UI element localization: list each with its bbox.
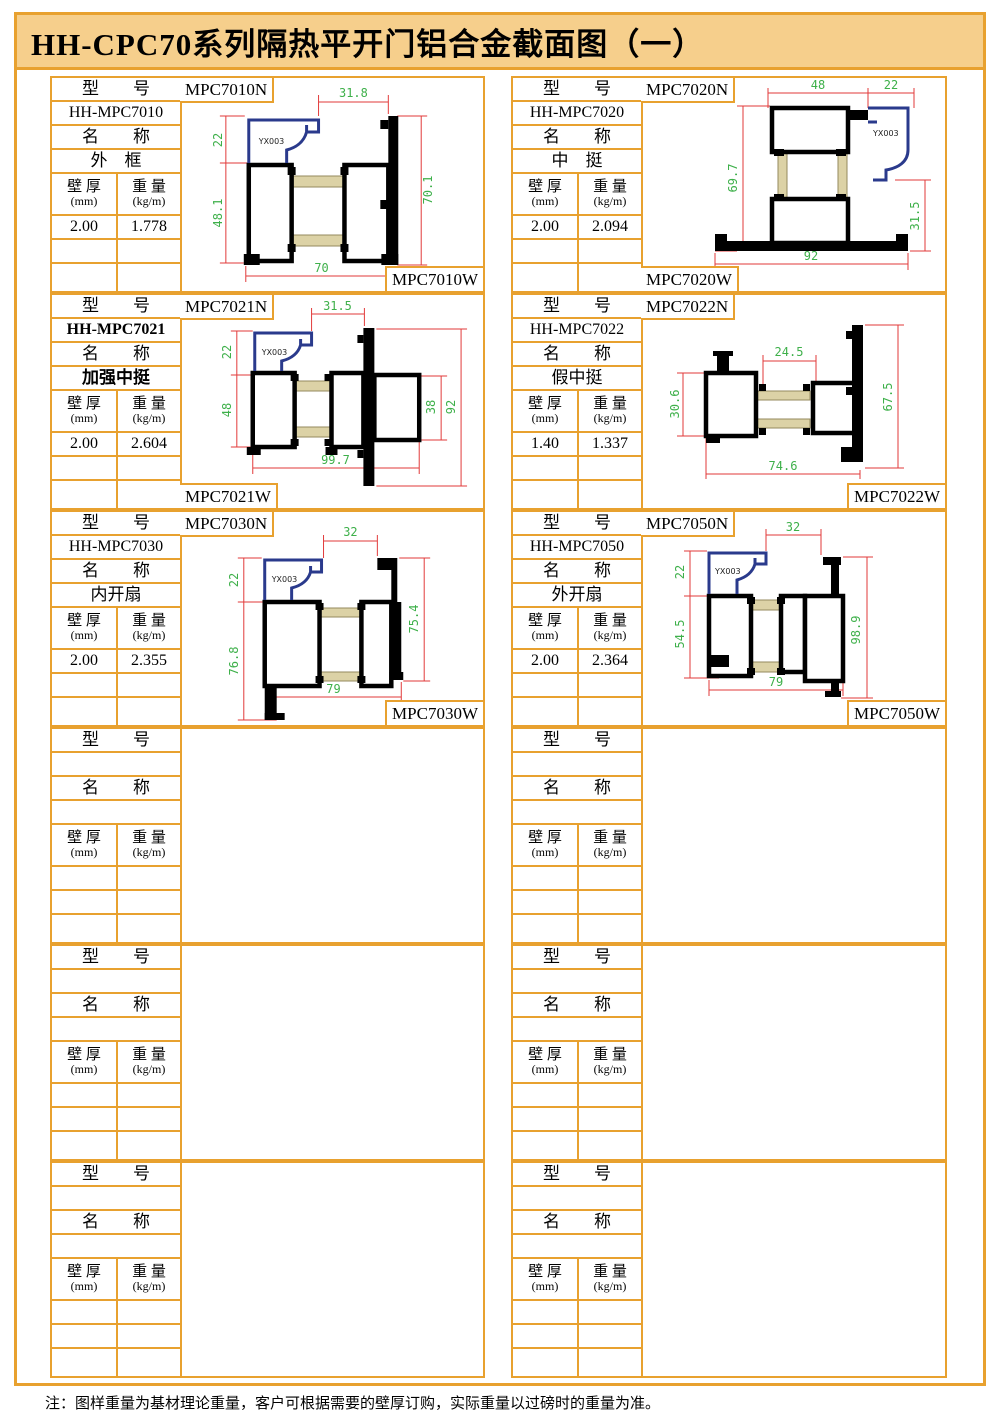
name-label: 名 称 xyxy=(52,994,180,1018)
section-drawing-mpc7021: YX003 31.5 22 48 38 92 99.7 xyxy=(182,295,483,508)
weight-header: 重 量(kg/m) xyxy=(577,825,641,865)
units-header-row: 壁 厚(mm) 重 量(kg/m) xyxy=(513,174,641,216)
values-row: 2.00 2.364 xyxy=(513,650,641,674)
dim-left-top: 22 xyxy=(211,133,225,147)
drawing-code-n: MPC7022N xyxy=(641,295,735,320)
drawing-code-n: MPC7021N xyxy=(180,295,274,320)
thermal-breaks xyxy=(295,381,332,437)
model-label: 型 号 xyxy=(513,946,641,970)
model-label: 型 号 xyxy=(513,729,641,753)
empty-row xyxy=(52,1108,180,1132)
units-header-row: 壁 厚(mm) 重 量(kg/m) xyxy=(52,174,180,216)
dim-top: 24.5 xyxy=(775,345,804,359)
empty-row xyxy=(513,1349,641,1376)
spec-table: 型 号 名 称 壁 厚(mm) 重 量(kg/m) xyxy=(52,946,182,1159)
dim-top-left: 48 xyxy=(811,78,825,92)
dim-top: 32 xyxy=(786,520,800,534)
values-row: 2.00 2.094 xyxy=(513,216,641,240)
cell-mpc7030: 型 号 HH-MPC7030 名 称 内开扇 壁 厚(mm) 重 量(kg/m)… xyxy=(50,510,485,727)
name-value: 外开扇 xyxy=(513,584,641,608)
model-value: HH-MPC7050 xyxy=(513,536,641,560)
gasket-label: YX003 xyxy=(714,567,741,576)
empty-row xyxy=(52,481,180,508)
drawing-code-w: MPC7022W xyxy=(847,483,945,508)
gasket-label: YX003 xyxy=(261,348,288,357)
weight-value: 2.355 xyxy=(116,650,180,672)
cell-empty-5: 型 号 名 称 壁 厚(mm) 重 量(kg/m) xyxy=(50,1161,485,1378)
name-label: 名 称 xyxy=(52,777,180,801)
thickness-header: 壁 厚(mm) xyxy=(52,825,116,865)
model-value: HH-MPC7022 xyxy=(513,319,641,343)
thermal-breaks xyxy=(292,176,345,246)
weight-header: 重 量(kg/m) xyxy=(116,174,180,214)
units-header-row: 壁 厚(mm) 重 量(kg/m) xyxy=(513,391,641,433)
model-value xyxy=(52,753,180,777)
footer-note: 注：图样重量为基材理论重量，客户可根据需要的壁厚订购，实际重量以过磅时的重量为准… xyxy=(45,1392,660,1413)
thickness-value: 1.40 xyxy=(513,433,577,455)
thickness-value: 2.00 xyxy=(52,433,116,455)
empty-row xyxy=(513,457,641,481)
empty-row xyxy=(513,1084,641,1108)
dim-left-top: 22 xyxy=(227,573,241,587)
name-label: 名 称 xyxy=(513,994,641,1018)
thickness-header: 壁 厚(mm) xyxy=(513,608,577,648)
thickness-header: 壁 厚(mm) xyxy=(52,608,116,648)
name-value: 假中挺 xyxy=(513,367,641,391)
dim-left: 76.8 xyxy=(227,647,241,676)
model-label: 型 号 xyxy=(513,512,641,536)
weight-header: 重 量(kg/m) xyxy=(577,608,641,648)
empty-row xyxy=(513,915,641,942)
thickness-header: 壁 厚(mm) xyxy=(513,1259,577,1299)
empty-row xyxy=(513,264,641,291)
units-header-row: 壁 厚(mm) 重 量(kg/m) xyxy=(52,825,180,867)
empty-row xyxy=(513,674,641,698)
page: HH-CPC70系列隔热平开门铝合金截面图（一） 型 号 HH-MPC7010 … xyxy=(0,0,1000,1415)
empty-row xyxy=(52,1325,180,1349)
weight-header: 重 量(kg/m) xyxy=(116,608,180,648)
name-value: 加强中挺 xyxy=(52,367,180,391)
spec-table: 型 号 HH-MPC7010 名 称 外 框 壁 厚(mm) 重 量(kg/m)… xyxy=(52,78,182,291)
name-value xyxy=(52,1018,180,1042)
empty-row xyxy=(513,1325,641,1349)
dim-bottom: 70 xyxy=(314,261,328,275)
units-header-row: 壁 厚(mm) 重 量(kg/m) xyxy=(52,391,180,433)
empty-row xyxy=(513,891,641,915)
thickness-header: 壁 厚(mm) xyxy=(52,1042,116,1082)
name-value: 外 框 xyxy=(52,150,180,174)
model-value xyxy=(52,1187,180,1211)
cells-grid: 型 号 HH-MPC7010 名 称 外 框 壁 厚(mm) 重 量(kg/m)… xyxy=(17,70,983,1378)
model-label: 型 号 xyxy=(52,729,180,753)
weight-header: 重 量(kg/m) xyxy=(116,391,180,431)
spec-table: 型 号 HH-MPC7021 名 称 加强中挺 壁 厚(mm) 重 量(kg/m… xyxy=(52,295,182,508)
weight-value: 1.778 xyxy=(116,216,180,238)
empty-row xyxy=(52,867,180,891)
weight-header: 重 量(kg/m) xyxy=(577,1259,641,1299)
cell-mpc7022: 型 号 HH-MPC7022 名 称 假中挺 壁 厚(mm) 重 量(kg/m)… xyxy=(511,293,947,510)
spec-table: 型 号 名 称 壁 厚(mm) 重 量(kg/m) xyxy=(52,1163,182,1376)
dim-top: 31.8 xyxy=(339,86,368,100)
gasket-label: YX003 xyxy=(872,129,899,138)
thickness-header: 壁 厚(mm) xyxy=(513,1042,577,1082)
weight-value: 1.337 xyxy=(577,433,641,455)
cell-empty-4: 型 号 名 称 壁 厚(mm) 重 量(kg/m) xyxy=(511,944,947,1161)
empty-row xyxy=(52,1084,180,1108)
model-label: 型 号 xyxy=(52,295,180,319)
units-header-row: 壁 厚(mm) 重 量(kg/m) xyxy=(513,825,641,867)
name-value xyxy=(513,1235,641,1259)
dim-left: 48.1 xyxy=(211,199,225,228)
dim-left: 48 xyxy=(220,403,234,417)
cell-mpc7050: 型 号 HH-MPC7050 名 称 外开扇 壁 厚(mm) 重 量(kg/m)… xyxy=(511,510,947,727)
weight-header: 重 量(kg/m) xyxy=(116,1259,180,1299)
empty-row xyxy=(513,1132,641,1159)
dim-bottom: 92 xyxy=(804,249,818,263)
name-value xyxy=(52,801,180,825)
drawing-code-n: MPC7030N xyxy=(180,512,274,537)
dim-right: 92 xyxy=(444,400,458,414)
cell-mpc7021: 型 号 HH-MPC7021 名 称 加强中挺 壁 厚(mm) 重 量(kg/m… xyxy=(50,293,485,510)
name-label: 名 称 xyxy=(513,777,641,801)
name-value xyxy=(513,801,641,825)
thermal-breaks xyxy=(778,150,847,199)
units-header-row: 壁 厚(mm) 重 量(kg/m) xyxy=(52,608,180,650)
name-label: 名 称 xyxy=(513,126,641,150)
model-value xyxy=(52,970,180,994)
weight-unit: (kg/m) xyxy=(133,195,166,208)
drawing-code-w: MPC7050W xyxy=(847,700,945,725)
model-value xyxy=(513,1187,641,1211)
units-header-row: 壁 厚(mm) 重 量(kg/m) xyxy=(52,1259,180,1301)
thickness-header: 壁 厚(mm) xyxy=(513,825,577,865)
empty-row xyxy=(513,481,641,508)
dim-top: 31.5 xyxy=(323,299,352,313)
thermal-breaks xyxy=(320,608,362,681)
values-row: 1.40 1.337 xyxy=(513,433,641,457)
spec-table: 型 号 名 称 壁 厚(mm) 重 量(kg/m) xyxy=(513,729,643,942)
page-title: HH-CPC70系列隔热平开门铝合金截面图（一） xyxy=(31,19,704,64)
units-header-row: 壁 厚(mm) 重 量(kg/m) xyxy=(513,1259,641,1301)
dim-left: 54.5 xyxy=(673,620,687,649)
cell-empty-2: 型 号 名 称 壁 厚(mm) 重 量(kg/m) xyxy=(511,727,947,944)
model-value xyxy=(513,753,641,777)
units-header-row: 壁 厚(mm) 重 量(kg/m) xyxy=(513,1042,641,1084)
model-label: 型 号 xyxy=(513,78,641,102)
dim-mid-right: 38 xyxy=(424,400,438,414)
thermal-breaks xyxy=(751,600,781,672)
drawing-code-w: MPC7020W xyxy=(641,266,739,291)
spec-table: 型 号 HH-MPC7030 名 称 内开扇 壁 厚(mm) 重 量(kg/m)… xyxy=(52,512,182,725)
dim-right: 75.4 xyxy=(407,605,421,634)
name-label: 名 称 xyxy=(513,343,641,367)
name-label: 名 称 xyxy=(52,126,180,150)
thickness-unit: (mm) xyxy=(71,195,98,208)
thickness-header: 壁 厚(mm) xyxy=(513,391,577,431)
model-label: 型 号 xyxy=(52,1163,180,1187)
values-row: 2.00 2.604 xyxy=(52,433,180,457)
model-value: HH-MPC7021 xyxy=(52,319,180,343)
gasket-label: YX003 xyxy=(271,575,298,584)
profile-chambers xyxy=(253,373,419,447)
thickness-value: 2.00 xyxy=(513,650,577,672)
model-label: 型 号 xyxy=(513,1163,641,1187)
drawing-code-n: MPC7020N xyxy=(641,78,735,103)
section-drawing-mpc7030: YX003 32 22 76.8 75.4 79 xyxy=(182,512,483,725)
name-label: 名 称 xyxy=(513,1211,641,1235)
spec-table: 型 号 HH-MPC7022 名 称 假中挺 壁 厚(mm) 重 量(kg/m)… xyxy=(513,295,643,508)
empty-row xyxy=(52,240,180,264)
name-value xyxy=(513,1018,641,1042)
thickness-value: 2.00 xyxy=(52,216,116,238)
weight-value: 2.604 xyxy=(116,433,180,455)
dim-left: 30.6 xyxy=(668,390,682,419)
empty-row xyxy=(513,1108,641,1132)
dim-right: 98.9 xyxy=(849,616,863,645)
section-drawing-mpc7010: YX003 31.8 22 48.1 70.1 70 xyxy=(182,78,483,291)
dim-bottom: 79 xyxy=(326,682,340,696)
values-row: 2.00 1.778 xyxy=(52,216,180,240)
thermal-breaks xyxy=(756,391,810,428)
empty-row xyxy=(513,698,641,725)
cell-empty-6: 型 号 名 称 壁 厚(mm) 重 量(kg/m) xyxy=(511,1161,947,1378)
empty-row xyxy=(52,457,180,481)
cell-empty-1: 型 号 名 称 壁 厚(mm) 重 量(kg/m) xyxy=(50,727,485,944)
section-drawing-mpc7022: 24.5 30.6 67.5 74.6 xyxy=(643,295,945,508)
model-value: HH-MPC7030 xyxy=(52,536,180,560)
section-drawing-mpc7020: YX003 48 22 69.7 31.5 92 xyxy=(643,78,945,291)
thickness-value: 2.00 xyxy=(513,216,577,238)
empty-row xyxy=(52,698,180,725)
thickness-value: 2.00 xyxy=(52,650,116,672)
weight-header: 重 量(kg/m) xyxy=(577,174,641,214)
empty-row xyxy=(52,264,180,291)
name-value: 中 挺 xyxy=(513,150,641,174)
units-header-row: 壁 厚(mm) 重 量(kg/m) xyxy=(52,1042,180,1084)
empty-row xyxy=(52,1132,180,1159)
weight-value: 2.094 xyxy=(577,216,641,238)
empty-row xyxy=(52,1349,180,1376)
section-drawing-mpc7050: YX003 32 22 54.5 98.9 79 xyxy=(643,512,945,725)
empty-row xyxy=(52,1301,180,1325)
values-row: 2.00 2.355 xyxy=(52,650,180,674)
units-header-row: 壁 厚(mm) 重 量(kg/m) xyxy=(513,608,641,650)
drawing-code-w: MPC7010W xyxy=(385,266,483,291)
dim-left-top: 22 xyxy=(220,345,234,359)
model-label: 型 号 xyxy=(513,295,641,319)
model-value: HH-MPC7020 xyxy=(513,102,641,126)
dim-right: 67.5 xyxy=(881,383,895,412)
name-value: 内开扇 xyxy=(52,584,180,608)
empty-row xyxy=(52,891,180,915)
weight-header: 重 量(kg/m) xyxy=(116,1042,180,1082)
weight-header: 重 量(kg/m) xyxy=(577,391,641,431)
cell-empty-3: 型 号 名 称 壁 厚(mm) 重 量(kg/m) xyxy=(50,944,485,1161)
drawing-code-n: MPC7050N xyxy=(641,512,735,537)
weight-value: 2.364 xyxy=(577,650,641,672)
empty-row xyxy=(513,1301,641,1325)
spec-table: 型 号 名 称 壁 厚(mm) 重 量(kg/m) xyxy=(513,946,643,1159)
spec-table: 型 号 名 称 壁 厚(mm) 重 量(kg/m) xyxy=(52,729,182,942)
drawing-code-n: MPC7010N xyxy=(180,78,274,103)
dim-right: 31.5 xyxy=(908,202,922,231)
weight-header: 重 量(kg/m) xyxy=(116,825,180,865)
gasket-label: YX003 xyxy=(258,137,285,146)
model-label: 型 号 xyxy=(52,78,180,102)
name-label: 名 称 xyxy=(52,343,180,367)
gasket-outline xyxy=(868,108,908,180)
dim-bottom: 74.6 xyxy=(769,459,798,473)
thickness-header: 壁 厚(mm) xyxy=(52,1259,116,1299)
dim-bottom: 79 xyxy=(769,675,783,689)
dim-bottom: 99.7 xyxy=(321,453,350,467)
sheet-frame: HH-CPC70系列隔热平开门铝合金截面图（一） 型 号 HH-MPC7010 … xyxy=(14,12,986,1386)
spec-table: 型 号 名 称 壁 厚(mm) 重 量(kg/m) xyxy=(513,1163,643,1376)
spec-table: 型 号 HH-MPC7020 名 称 中 挺 壁 厚(mm) 重 量(kg/m)… xyxy=(513,78,643,291)
dim-top: 32 xyxy=(343,525,357,539)
dim-top-right: 22 xyxy=(884,78,898,92)
thickness-header: 壁 厚(mm) xyxy=(52,174,116,214)
weight-header: 重 量(kg/m) xyxy=(577,1042,641,1082)
thickness-header: 壁 厚(mm) xyxy=(513,174,577,214)
dim-right: 70.1 xyxy=(421,176,435,205)
empty-row xyxy=(52,674,180,698)
name-value xyxy=(52,1235,180,1259)
dim-left-top: 22 xyxy=(673,565,687,579)
drawing-code-w: MPC7030W xyxy=(385,700,483,725)
cell-mpc7020: 型 号 HH-MPC7020 名 称 中 挺 壁 厚(mm) 重 量(kg/m)… xyxy=(511,76,947,293)
spec-table: 型 号 HH-MPC7050 名 称 外开扇 壁 厚(mm) 重 量(kg/m)… xyxy=(513,512,643,725)
thickness-header: 壁 厚(mm) xyxy=(52,391,116,431)
name-label: 名 称 xyxy=(52,1211,180,1235)
empty-row xyxy=(513,240,641,264)
model-value xyxy=(513,970,641,994)
name-label: 名 称 xyxy=(52,560,180,584)
cell-mpc7010: 型 号 HH-MPC7010 名 称 外 框 壁 厚(mm) 重 量(kg/m)… xyxy=(50,76,485,293)
dim-left: 69.7 xyxy=(726,164,740,193)
model-label: 型 号 xyxy=(52,946,180,970)
drawing-code-w: MPC7021W xyxy=(180,483,278,508)
name-label: 名 称 xyxy=(513,560,641,584)
empty-row xyxy=(513,867,641,891)
title-bar: HH-CPC70系列隔热平开门铝合金截面图（一） xyxy=(17,15,983,70)
model-label: 型 号 xyxy=(52,512,180,536)
empty-row xyxy=(52,915,180,942)
model-value: HH-MPC7010 xyxy=(52,102,180,126)
